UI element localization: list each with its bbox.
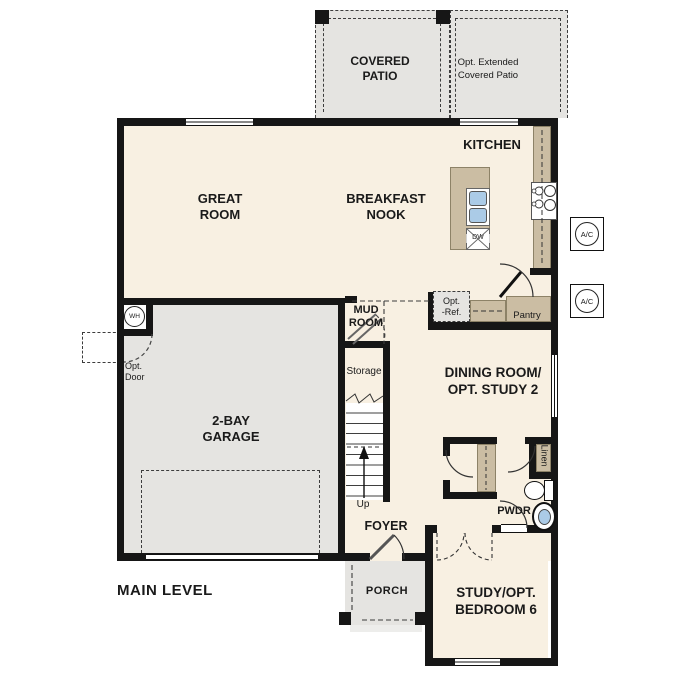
cooktop	[531, 182, 557, 220]
garage-label: 2-BAY GARAGE	[185, 413, 277, 446]
opt-door-outline	[82, 332, 121, 363]
dining-room-label: DINING ROOM/ OPT. STUDY 2	[418, 365, 568, 399]
foyer-label: FOYER	[360, 519, 412, 535]
water-heater: WH	[124, 306, 145, 327]
opt-refrigerator: Opt. -Ref.	[433, 291, 470, 322]
sink-basin	[469, 191, 487, 206]
powder-sink-basin	[538, 509, 551, 525]
ac-unit-label: A/C	[581, 297, 594, 306]
wall-mudroom-top	[345, 296, 357, 303]
ac-unit-box: A/C	[570, 284, 604, 318]
toilet-bowl	[524, 481, 545, 500]
patio-post	[436, 10, 450, 24]
stairs	[346, 403, 383, 500]
wall-closet-bottom	[443, 492, 497, 499]
opt-door-label: Opt. Door	[125, 361, 163, 383]
powder-room-label: PWDR	[493, 505, 535, 519]
breakfast-nook-label: BREAKFAST NOOK	[334, 191, 438, 224]
powder-door-opening	[501, 524, 527, 533]
great-room-label: GREAT ROOM	[178, 191, 262, 224]
wall-kitchen-dining	[428, 322, 558, 330]
wall-counter-stub	[530, 268, 551, 275]
porch-post	[415, 612, 428, 625]
wall-closet-jamb	[443, 437, 450, 456]
patio-post	[315, 10, 329, 24]
main-level-title: MAIN LEVEL	[117, 582, 257, 601]
wall-garage-hall	[338, 298, 345, 561]
wall-closet-top	[443, 437, 497, 444]
stairs-up-label: Up	[350, 499, 376, 512]
wall-left	[117, 118, 124, 561]
pantry-label: Pantry	[505, 310, 549, 322]
porch-post	[339, 612, 351, 625]
wall-linen-left	[529, 444, 536, 472]
opt-extended-patio-label: Opt. Extended Covered Patio	[442, 57, 534, 83]
wall-closet-jamb	[443, 480, 450, 499]
mud-room-label: MUD ROOM	[342, 304, 390, 330]
great-room-window	[186, 118, 253, 126]
porch-label: PORCH	[360, 585, 414, 599]
garage-door-track-outline	[141, 470, 320, 553]
ac-unit-box: A/C	[570, 217, 604, 251]
coat-closet-shelf	[477, 444, 496, 492]
covered-patio-label: COVERED PATIO	[330, 54, 430, 84]
kitchen-counter-mid	[470, 300, 506, 322]
study-label: STUDY/OPT. BEDROOM 6	[441, 585, 551, 619]
porch-step	[350, 625, 422, 632]
water-heater-label: WH	[129, 313, 140, 320]
wall-study-left	[425, 525, 433, 666]
opt-refrigerator-label: Opt. -Ref.	[442, 296, 462, 318]
wall-mudroom-storage	[338, 341, 390, 348]
wall-waterheater-bottom	[124, 329, 153, 336]
toilet-tank	[544, 480, 554, 501]
garage-door	[146, 554, 318, 560]
nook-sliding-door	[460, 118, 518, 126]
wall-front-foyer	[402, 553, 433, 561]
kitchen-label: KITCHEN	[455, 137, 529, 153]
floor-plan: WH A/C A/C Opt. -Ref. DW	[0, 0, 687, 687]
storage-label: Storage	[340, 366, 388, 379]
linen-label: Linen	[538, 436, 549, 476]
sink-basin	[469, 208, 487, 223]
dishwasher-label: DW	[466, 234, 490, 243]
wall-greatroom-garage	[117, 298, 345, 305]
study-window	[455, 658, 500, 666]
ac-unit-label: A/C	[581, 230, 594, 239]
